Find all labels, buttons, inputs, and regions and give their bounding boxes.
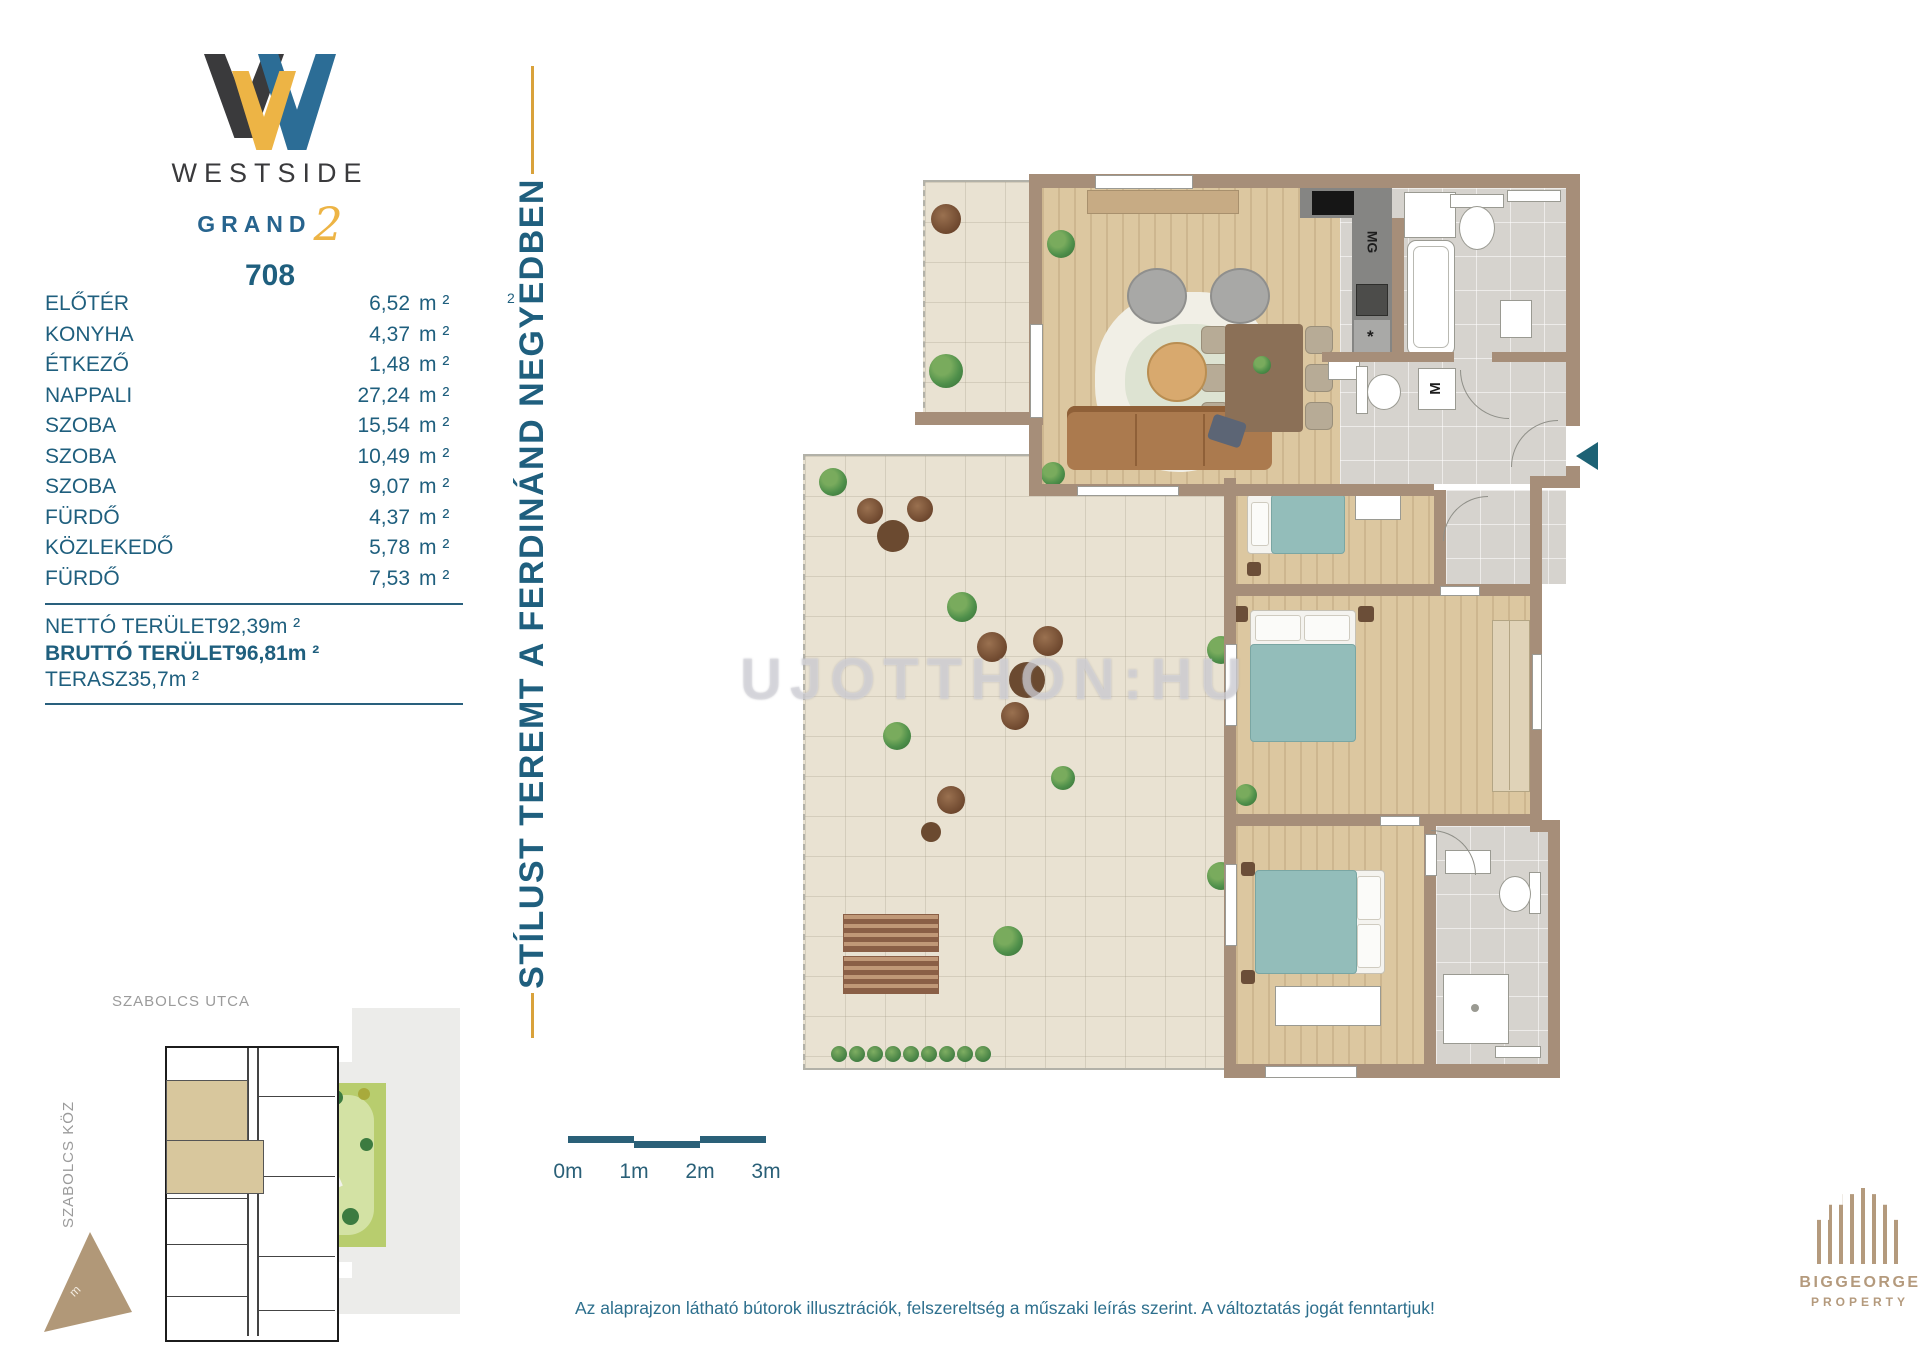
- building-line: [259, 1256, 335, 1257]
- dining-table: [1225, 324, 1303, 432]
- project-logo: WESTSIDE GRAND2 708: [140, 54, 400, 293]
- armchair: [1210, 268, 1270, 324]
- cooktop: [1312, 191, 1354, 215]
- tree-icon: [342, 1208, 359, 1225]
- dining-chair: [1305, 326, 1333, 354]
- room-unit: m ²: [410, 567, 463, 591]
- disclaimer-text: Az alaprajzon látható bútorok illusztrác…: [575, 1298, 1495, 1319]
- bedroom2-window: [1532, 654, 1542, 730]
- plant-icon: [819, 468, 847, 496]
- tree-icon: [360, 1138, 373, 1151]
- bush-icon: [867, 1046, 883, 1062]
- plant-icon: [1047, 230, 1075, 258]
- bed3-rug: [1275, 986, 1381, 1026]
- kitchen-hood-label: MG: [1364, 231, 1380, 254]
- table-row: KÖZLEKEDŐ 5,78 m ²: [45, 533, 463, 564]
- sideboard: [1087, 190, 1239, 214]
- room-value: 10,49: [340, 445, 410, 469]
- street-label-left: SZABOLCS KÖZ: [60, 1078, 77, 1228]
- room-value: 9,07: [340, 475, 410, 499]
- room-label: KONYHA: [45, 323, 340, 347]
- scale-label: 1m: [612, 1160, 656, 1184]
- room-unit: m ²: [410, 353, 463, 377]
- bed3-pillow: [1357, 924, 1381, 968]
- biggeorge-icon: [1817, 1188, 1903, 1264]
- plant-icon: [883, 722, 911, 750]
- building-line: [259, 1176, 335, 1177]
- building-line: [167, 1244, 247, 1245]
- nightstand: [1241, 862, 1255, 876]
- plant-icon: [1235, 784, 1257, 806]
- gold-line-top: [531, 66, 534, 174]
- toilet3-bowl: [1499, 876, 1531, 912]
- coffee-table: [1147, 342, 1207, 402]
- highlighted-unit: [166, 1080, 248, 1142]
- bush-icon: [957, 1046, 973, 1062]
- brand-script-number: 2: [314, 197, 343, 251]
- scale-label: 0m: [546, 1160, 590, 1184]
- terrace-chair: [907, 496, 933, 522]
- brand-subtitle: GRAND: [197, 211, 311, 238]
- living-terrace-door: [1077, 486, 1179, 496]
- gold-line-bottom: [531, 993, 534, 1038]
- bedroom3-door-gap: [1380, 816, 1420, 826]
- bed2-pillow: [1304, 615, 1350, 641]
- tree-icon: [358, 1088, 370, 1100]
- total-row: TERASZ 35,7 m ²: [45, 667, 463, 694]
- terrace-table: [921, 822, 941, 842]
- total-value: 35,7: [128, 668, 169, 692]
- armchair: [1127, 268, 1187, 324]
- dining-chair: [1305, 402, 1333, 430]
- room-label: NAPPALI: [45, 384, 340, 408]
- dishwasher-label: *: [1367, 327, 1374, 347]
- entrance-arrow-icon: [1576, 442, 1598, 470]
- room-label: SZOBA: [45, 414, 340, 438]
- total-unit: m ²: [270, 615, 300, 639]
- room-unit: m ²: [410, 414, 463, 438]
- nightstand: [1358, 606, 1374, 622]
- bed1-shelf: [1355, 492, 1401, 520]
- total-label: TERASZ: [45, 668, 128, 692]
- vertical-slogan-banner: STÍLUST TEREMT A FERDINÁND NEGYEDBEN: [505, 66, 559, 1038]
- wardrobe: [1492, 620, 1530, 792]
- shower-drain: [1471, 1004, 1479, 1012]
- table-row: ELŐTÉR 6,52 m ² 2: [45, 289, 463, 320]
- scale-segment: [700, 1136, 766, 1143]
- total-unit: m ²: [169, 668, 199, 692]
- room-value: 4,37: [340, 323, 410, 347]
- bed3-blanket: [1255, 870, 1357, 974]
- wall-bedrooms-left: [1224, 478, 1236, 1064]
- room-value: 1,48: [340, 353, 410, 377]
- bedroom3-terrace-door: [1225, 864, 1237, 946]
- room-label: ELŐTÉR: [45, 292, 340, 316]
- scale-bar: 0m 1m 2m 3m: [568, 1136, 780, 1196]
- wall-small-terrace-bottom: [915, 412, 1043, 425]
- bush-icon: [903, 1046, 919, 1062]
- bush-icon: [921, 1046, 937, 1062]
- sofa-seam: [1135, 414, 1137, 466]
- bush-icon: [849, 1046, 865, 1062]
- developer-subtitle: PROPERTY: [1772, 1295, 1920, 1309]
- building-line: [259, 1096, 335, 1097]
- wall-bedroom1-2: [1224, 584, 1542, 596]
- washbasin1: [1500, 300, 1532, 338]
- bed1-blanket: [1271, 494, 1345, 554]
- building-line: [167, 1296, 247, 1297]
- nightstand: [1247, 562, 1261, 576]
- room-value: 27,24: [340, 384, 410, 408]
- room-label: FÜRDŐ: [45, 567, 340, 591]
- room-unit: m ²: [410, 475, 463, 499]
- table-row: NAPPALI 27,24 m ²: [45, 381, 463, 412]
- slogan-text: STÍLUST TEREMT A FERDINÁND NEGYEDBEN: [513, 178, 552, 989]
- table-row: KONYHA 4,37 m ²: [45, 320, 463, 351]
- room-label: SZOBA: [45, 475, 340, 499]
- plant-icon: [993, 926, 1023, 956]
- table-row: FÜRDŐ 4,37 m ²: [45, 503, 463, 534]
- balcony-door-window: [1030, 324, 1043, 418]
- bathtub-inner: [1413, 246, 1449, 348]
- bed2-blanket: [1250, 644, 1356, 742]
- building-line: [167, 1198, 247, 1199]
- plant-icon: [1051, 766, 1075, 790]
- room-unit: m ²: [410, 506, 463, 530]
- living-top-window: [1095, 175, 1193, 189]
- westside-w-icon: [204, 54, 336, 150]
- table-row: SZOBA 15,54 m ²: [45, 411, 463, 442]
- room-label: SZOBA: [45, 445, 340, 469]
- table-plant-icon: [1253, 356, 1271, 374]
- room-value: 5,78: [340, 536, 410, 560]
- bush-icon: [885, 1046, 901, 1062]
- kitchen-sink: [1356, 284, 1388, 316]
- room-value: 15,54: [340, 414, 410, 438]
- total-row: NETTÓ TERÜLET 92,39 m ²: [45, 614, 463, 641]
- table-row: ÉTKEZŐ 1,48 m ²: [45, 350, 463, 381]
- developer-logo: BIGGEORGE PROPERTY: [1772, 1188, 1920, 1309]
- toilet1-bowl: [1459, 206, 1495, 250]
- table-row: SZOBA 9,07 m ²: [45, 472, 463, 503]
- bush-icon: [975, 1046, 991, 1062]
- table-row: SZOBA 10,49 m ²: [45, 442, 463, 473]
- developer-name: BIGGEORGE: [1772, 1274, 1920, 1292]
- sofa-seam: [1203, 414, 1205, 466]
- bed1-pillow: [1251, 502, 1269, 546]
- bedroom2-door-gap: [1440, 586, 1480, 596]
- bed2-pillow: [1255, 615, 1301, 641]
- apartment-number: 708: [140, 259, 400, 293]
- bush-icon: [939, 1046, 955, 1062]
- building-line: [259, 1310, 335, 1311]
- table-row: FÜRDŐ 7,53 m ²: [45, 564, 463, 595]
- room-label: ÉTKEZŐ: [45, 353, 340, 377]
- terrace-chair: [931, 204, 961, 234]
- room-unit: m ²: [410, 292, 463, 316]
- building-footprint: [165, 1046, 339, 1342]
- wall-kitchen-bath1: [1392, 218, 1404, 352]
- towel-rail: [1507, 190, 1561, 202]
- scale-segment: [634, 1141, 700, 1148]
- total-unit: m ²: [288, 642, 320, 666]
- room-value: 7,53: [340, 567, 410, 591]
- wall-bath1-bottom-b: [1492, 352, 1566, 362]
- north-arrow-icon: [40, 1232, 140, 1332]
- shower-box: [1404, 192, 1456, 238]
- wall-right-upper: [1566, 174, 1580, 426]
- terrace-table: [877, 520, 909, 552]
- room-label: KÖZLEKEDŐ: [45, 536, 340, 560]
- plant-icon: [1041, 462, 1065, 486]
- plant-icon: [929, 354, 963, 388]
- scale-segment: [568, 1136, 634, 1143]
- toilet2-bowl: [1367, 374, 1401, 410]
- room-unit: m ²: [410, 323, 463, 347]
- room-value: 6,52: [340, 292, 410, 316]
- terrace-chair: [937, 786, 965, 814]
- washing-machine-label: M: [1427, 382, 1444, 395]
- total-label: BRUTTÓ TERÜLET: [45, 642, 235, 666]
- street-label-top: SZABOLCS UTCA: [112, 993, 250, 1010]
- room-unit: m ²: [410, 384, 463, 408]
- terrace-chair: [857, 498, 883, 524]
- divider: [45, 603, 463, 605]
- nightstand: [1241, 970, 1255, 984]
- pergola-slats: [843, 914, 939, 952]
- floor-plan: MG * M: [795, 174, 1605, 1086]
- highlighted-unit: [166, 1140, 264, 1194]
- bedroom3-window: [1265, 1066, 1357, 1078]
- towel-rail: [1495, 1046, 1541, 1058]
- room-unit: m ²: [410, 536, 463, 560]
- room-area-table: ELŐTÉR 6,52 m ² 2 KONYHA 4,37 m ² ÉTKEZŐ…: [45, 289, 463, 714]
- wardrobe-line: [1509, 620, 1510, 790]
- divider: [45, 703, 463, 705]
- total-label: NETTÓ TERÜLET: [45, 615, 217, 639]
- wall-bath1-bottom-a: [1322, 352, 1454, 362]
- watermark: UJOTTHON:HU: [740, 646, 1250, 713]
- brand-title: WESTSIDE: [140, 158, 400, 189]
- plant-icon: [947, 592, 977, 622]
- pergola-slats: [843, 956, 939, 994]
- room-label: FÜRDŐ: [45, 506, 340, 530]
- total-row-gross: BRUTTÓ TERÜLET 96,81 m ²: [45, 641, 463, 668]
- scale-label: 3m: [744, 1160, 788, 1184]
- scale-label: 2m: [678, 1160, 722, 1184]
- total-value: 92,39: [217, 615, 270, 639]
- room-unit: m ²: [410, 445, 463, 469]
- wall-right-bath2: [1548, 820, 1560, 1076]
- bed3-pillow: [1357, 876, 1381, 920]
- room-value: 4,37: [340, 506, 410, 530]
- total-value: 96,81: [235, 642, 288, 666]
- bush-icon: [831, 1046, 847, 1062]
